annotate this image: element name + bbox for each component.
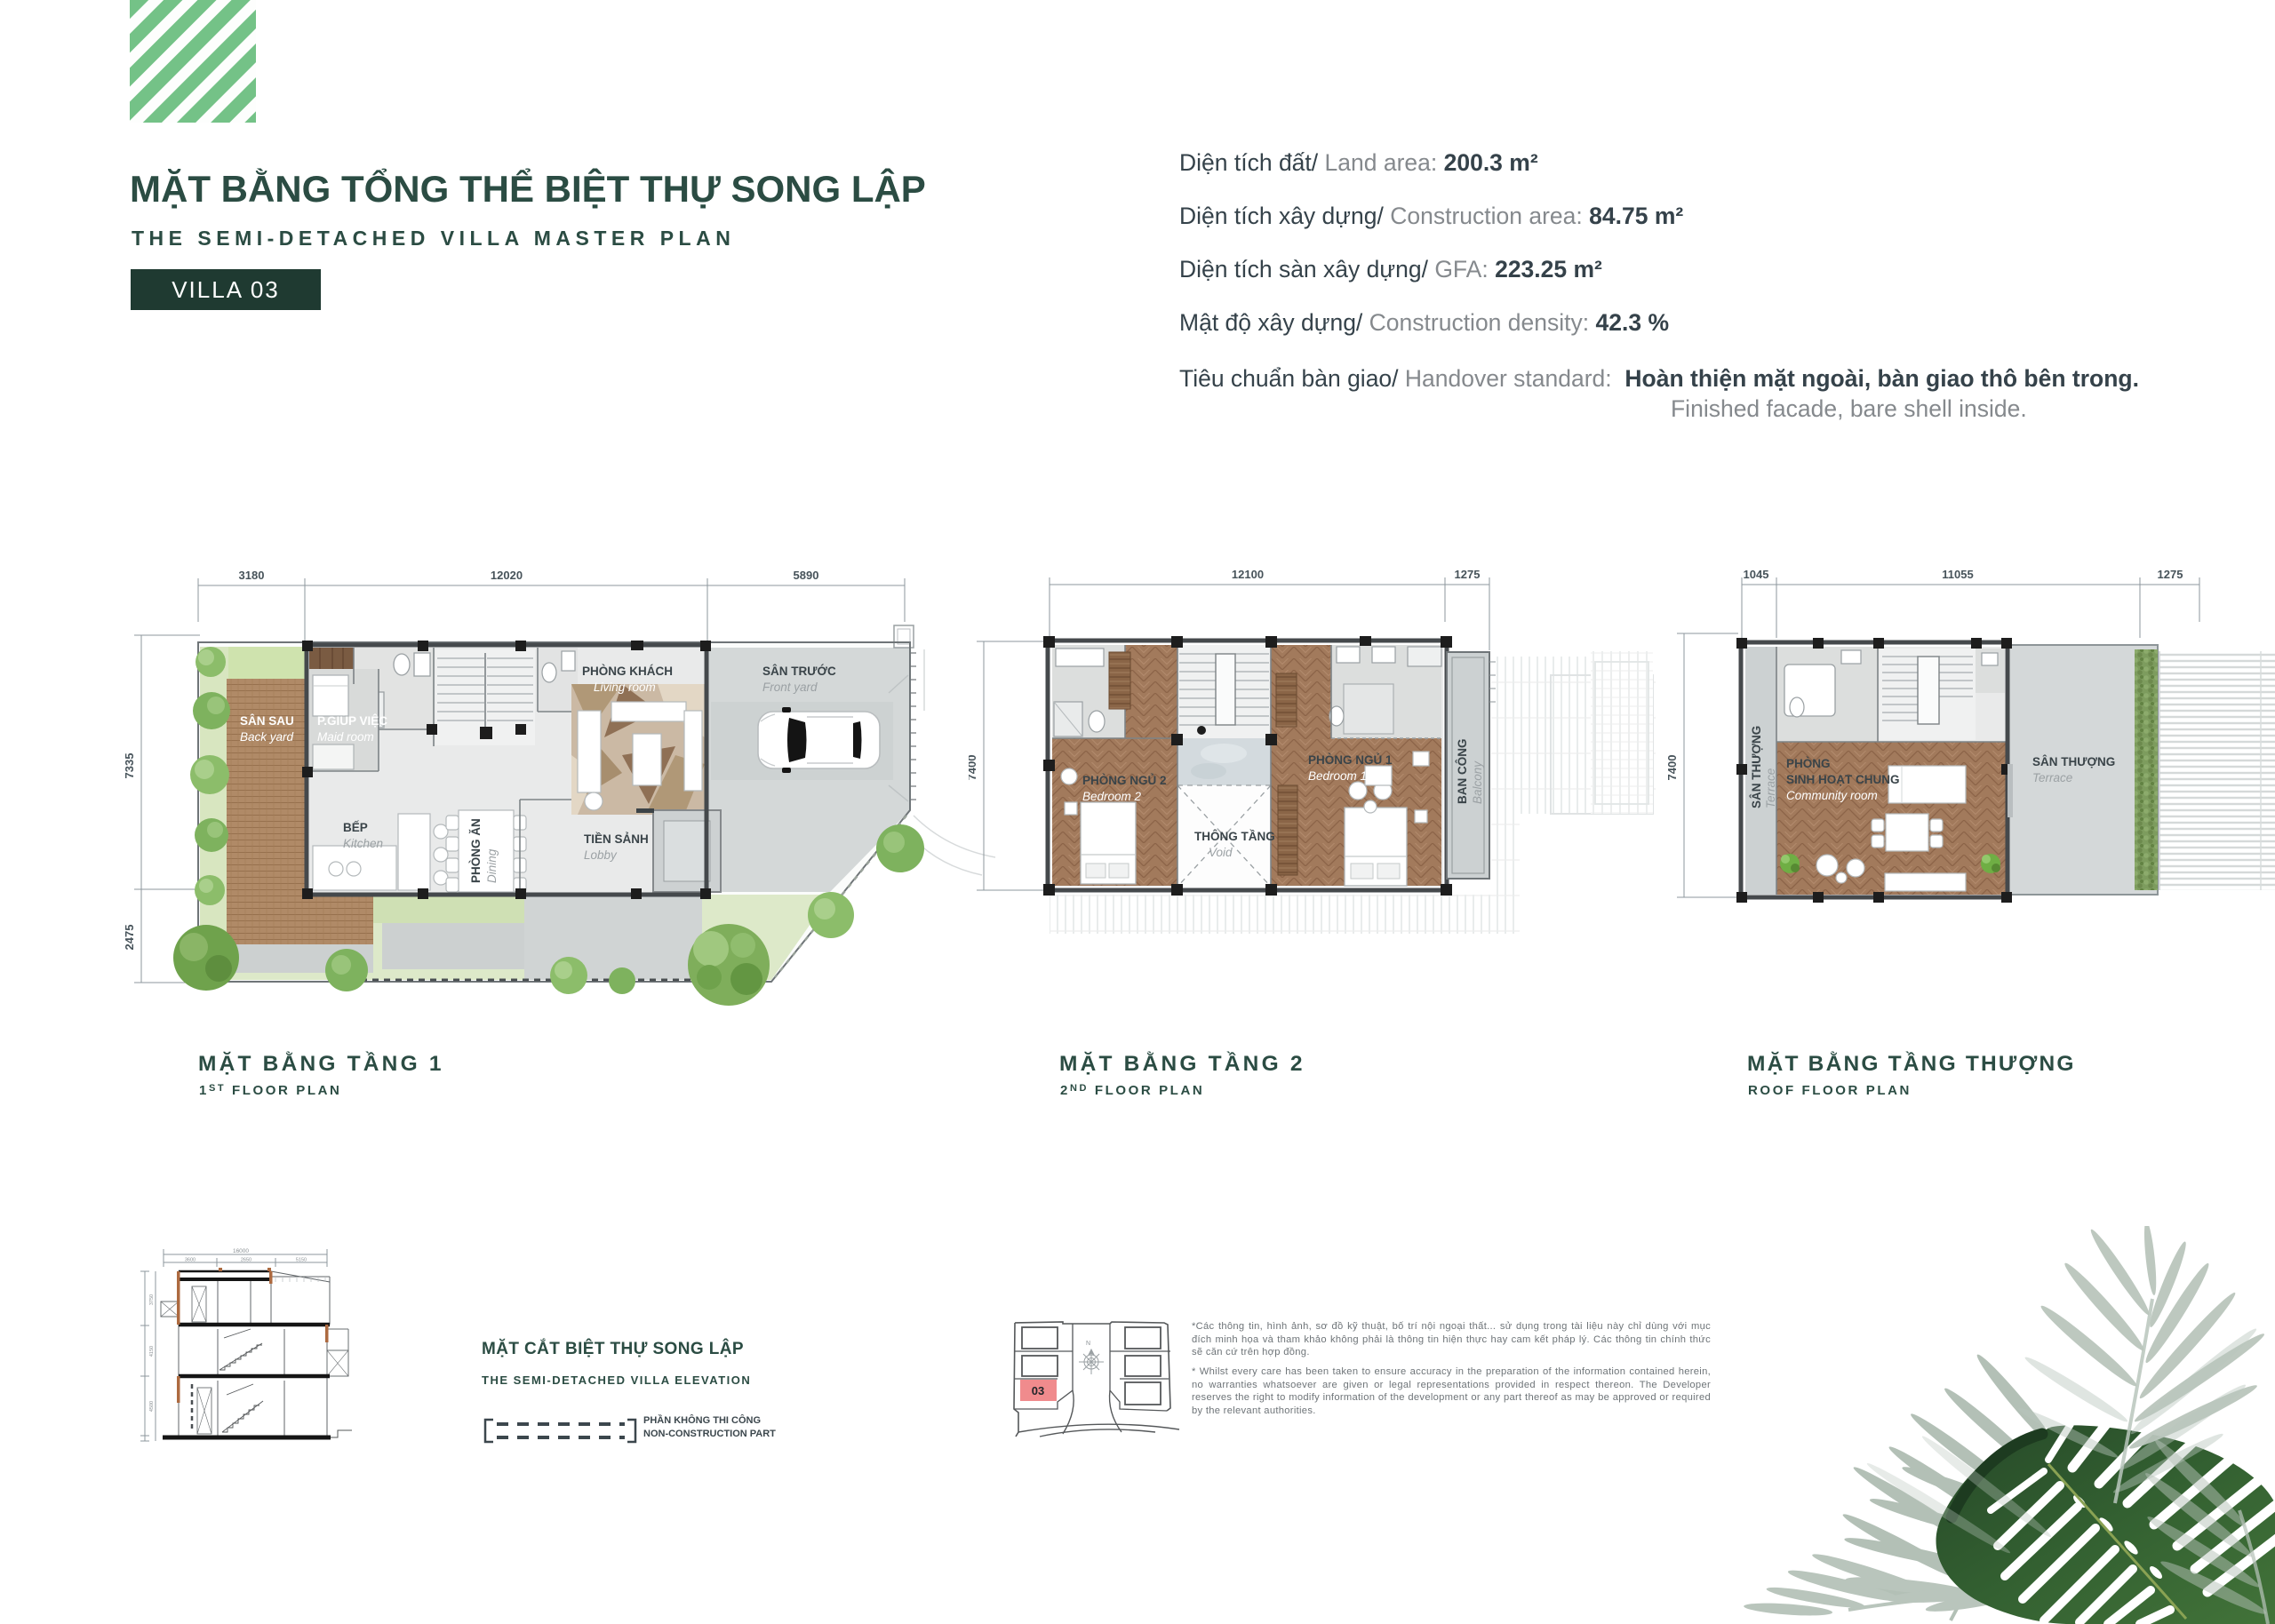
svg-text:SÂN SAU: SÂN SAU xyxy=(240,714,294,728)
svg-text:1275: 1275 xyxy=(1455,568,1481,581)
svg-text:SINH HOẠT CHUNG: SINH HOẠT CHUNG xyxy=(1786,773,1900,786)
svg-text:PHÒNG NGỦ 2: PHÒNG NGỦ 2 xyxy=(1082,774,1167,787)
svg-text:5150: 5150 xyxy=(296,1258,307,1263)
svg-text:4500: 4500 xyxy=(149,1401,155,1412)
svg-text:Balcony: Balcony xyxy=(1471,760,1484,804)
svg-text:1275: 1275 xyxy=(2158,568,2183,581)
svg-text:Terrace: Terrace xyxy=(2032,771,2072,784)
svg-text:2650: 2650 xyxy=(241,1258,251,1263)
svg-text:3180: 3180 xyxy=(239,569,265,582)
svg-text:N: N xyxy=(1086,1341,1090,1347)
svg-text:Lobby: Lobby xyxy=(584,848,618,862)
svg-text:Void: Void xyxy=(1209,846,1233,859)
svg-text:11055: 11055 xyxy=(1942,568,1973,581)
svg-text:12020: 12020 xyxy=(491,569,523,582)
svg-text:BAN CÔNG: BAN CÔNG xyxy=(1456,739,1469,805)
svg-text:Community room: Community room xyxy=(1786,789,1878,802)
svg-text:Front yard: Front yard xyxy=(762,681,818,694)
svg-text:PHÒNG KHÁCH: PHÒNG KHÁCH xyxy=(582,665,673,678)
svg-text:7400: 7400 xyxy=(1665,755,1679,781)
svg-text:12100: 12100 xyxy=(1232,568,1264,581)
svg-text:PHÒNG: PHÒNG xyxy=(1786,757,1831,770)
svg-text:3600: 3600 xyxy=(185,1258,196,1263)
svg-text:7335: 7335 xyxy=(123,753,136,779)
svg-text:16000: 16000 xyxy=(233,1248,249,1254)
svg-text:SÂN THƯỢNG: SÂN THƯỢNG xyxy=(1750,726,1763,808)
svg-text:03: 03 xyxy=(1032,1384,1044,1397)
svg-text:Back yard: Back yard xyxy=(240,730,294,744)
svg-text:PHÒNG ĂN: PHÒNG ĂN xyxy=(469,818,483,883)
svg-text:Living room: Living room xyxy=(594,681,656,694)
svg-text:THÔNG TẦNG: THÔNG TẦNG xyxy=(1194,830,1275,843)
svg-text:Dining: Dining xyxy=(485,848,499,883)
svg-text:Maid room: Maid room xyxy=(317,730,374,744)
svg-text:Bedroom 1: Bedroom 1 xyxy=(1308,769,1367,783)
svg-text:5890: 5890 xyxy=(794,569,819,582)
svg-text:2475: 2475 xyxy=(123,925,136,951)
svg-text:3750: 3750 xyxy=(149,1294,155,1305)
svg-text:1045: 1045 xyxy=(1744,568,1769,581)
svg-text:TIỀN SẢNH: TIỀN SẢNH xyxy=(584,832,649,846)
svg-text:SÂN TRƯỚC: SÂN TRƯỚC xyxy=(762,665,836,678)
svg-text:P.GIÚP VIỆC: P.GIÚP VIỆC xyxy=(317,714,387,728)
svg-text:Kitchen: Kitchen xyxy=(343,837,383,850)
svg-text:PHÒNG NGỦ 1: PHÒNG NGỦ 1 xyxy=(1308,753,1393,767)
svg-text:SÂN THƯỢNG: SÂN THƯỢNG xyxy=(2032,755,2115,768)
svg-text:BẾP: BẾP xyxy=(343,821,368,834)
svg-text:Terrace: Terrace xyxy=(1764,768,1777,808)
svg-text:7400: 7400 xyxy=(969,755,978,781)
svg-text:Bedroom 2: Bedroom 2 xyxy=(1082,790,1142,803)
svg-text:4150: 4150 xyxy=(149,1346,155,1357)
